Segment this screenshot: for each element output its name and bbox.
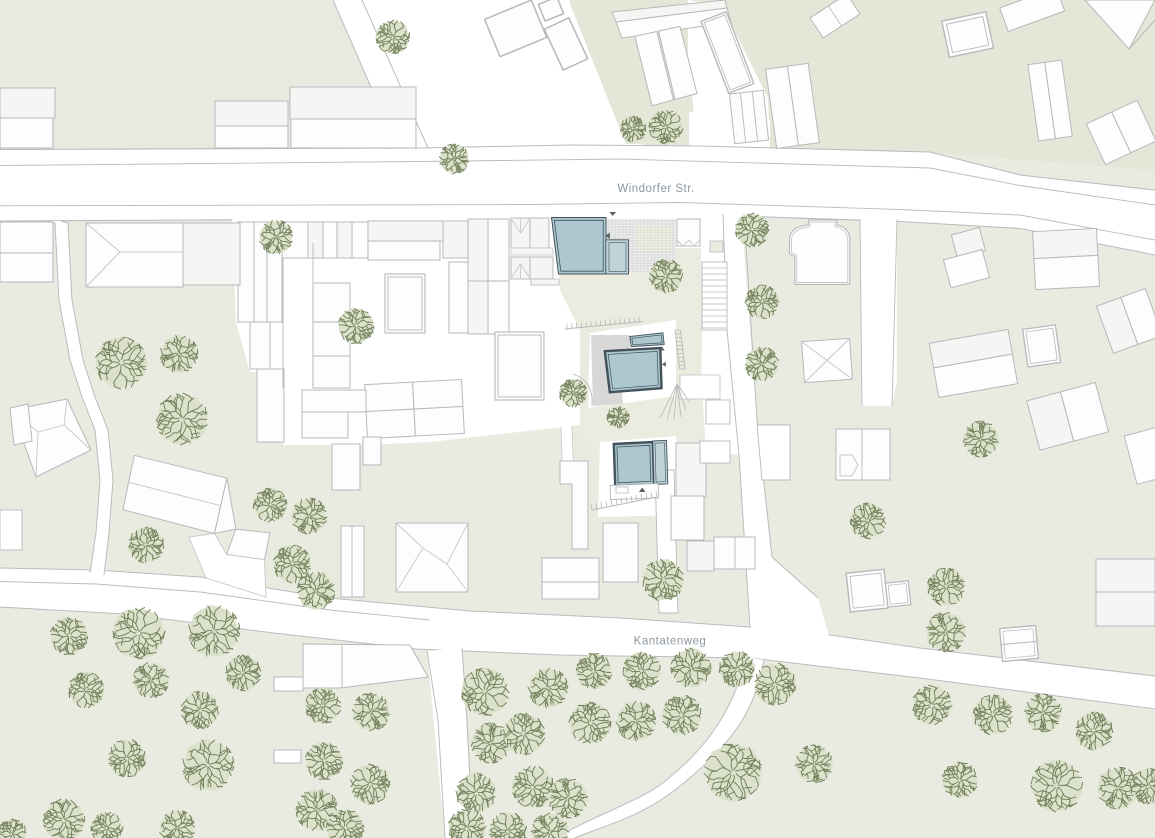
svg-text:Kantatenweg: Kantatenweg: [634, 636, 707, 648]
svg-text:Windorfer Str.: Windorfer Str.: [617, 183, 694, 195]
